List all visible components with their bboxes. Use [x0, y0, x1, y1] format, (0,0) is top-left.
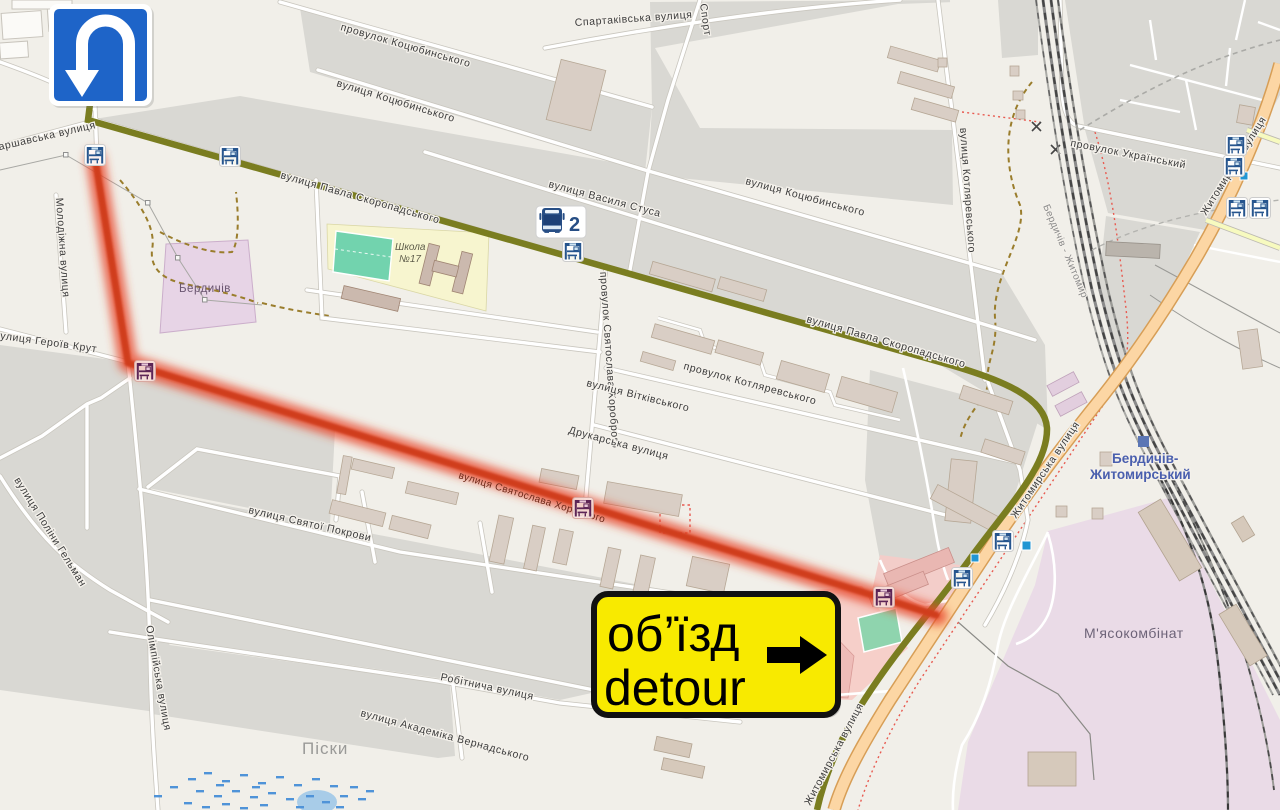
- svg-text:М'ясокомбінат: М'ясокомбінат: [1084, 625, 1184, 641]
- svg-text:detour: detour: [604, 660, 746, 716]
- svg-text:Бердичів: Бердичів: [179, 283, 231, 295]
- svg-text:Житомирський: Житомирський: [1089, 467, 1191, 482]
- svg-text:Школа: Школа: [395, 242, 426, 253]
- svg-text:Піски: Піски: [302, 739, 348, 758]
- svg-text:об’їзд: об’їзд: [607, 606, 739, 662]
- svg-text:№17: №17: [399, 254, 421, 265]
- svg-text:Бердичів-: Бердичів-: [1112, 451, 1178, 466]
- svg-text:2: 2: [569, 214, 580, 236]
